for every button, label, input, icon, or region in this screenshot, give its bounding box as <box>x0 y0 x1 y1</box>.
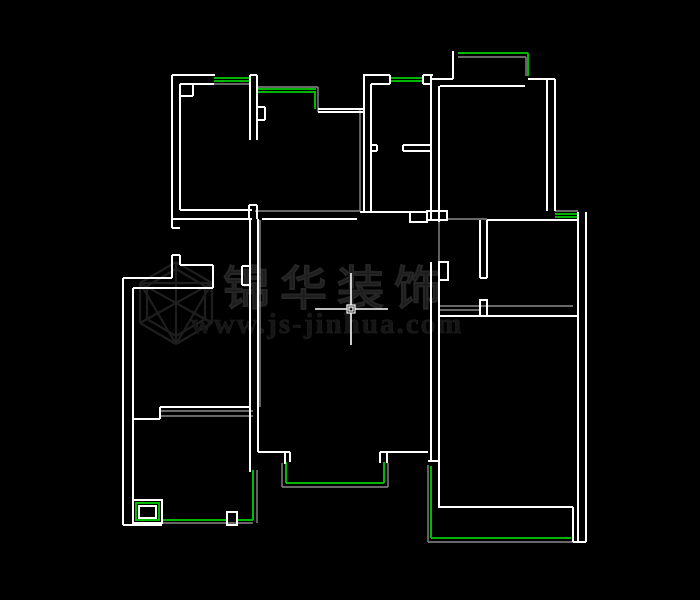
watermark-url-text: www.js-jinhua.com <box>191 308 463 340</box>
cad-viewport[interactable]: 锦华装饰 www.js-jinhua.com <box>0 0 700 600</box>
floorplan-canvas[interactable]: 锦华装饰 www.js-jinhua.com <box>0 0 700 600</box>
